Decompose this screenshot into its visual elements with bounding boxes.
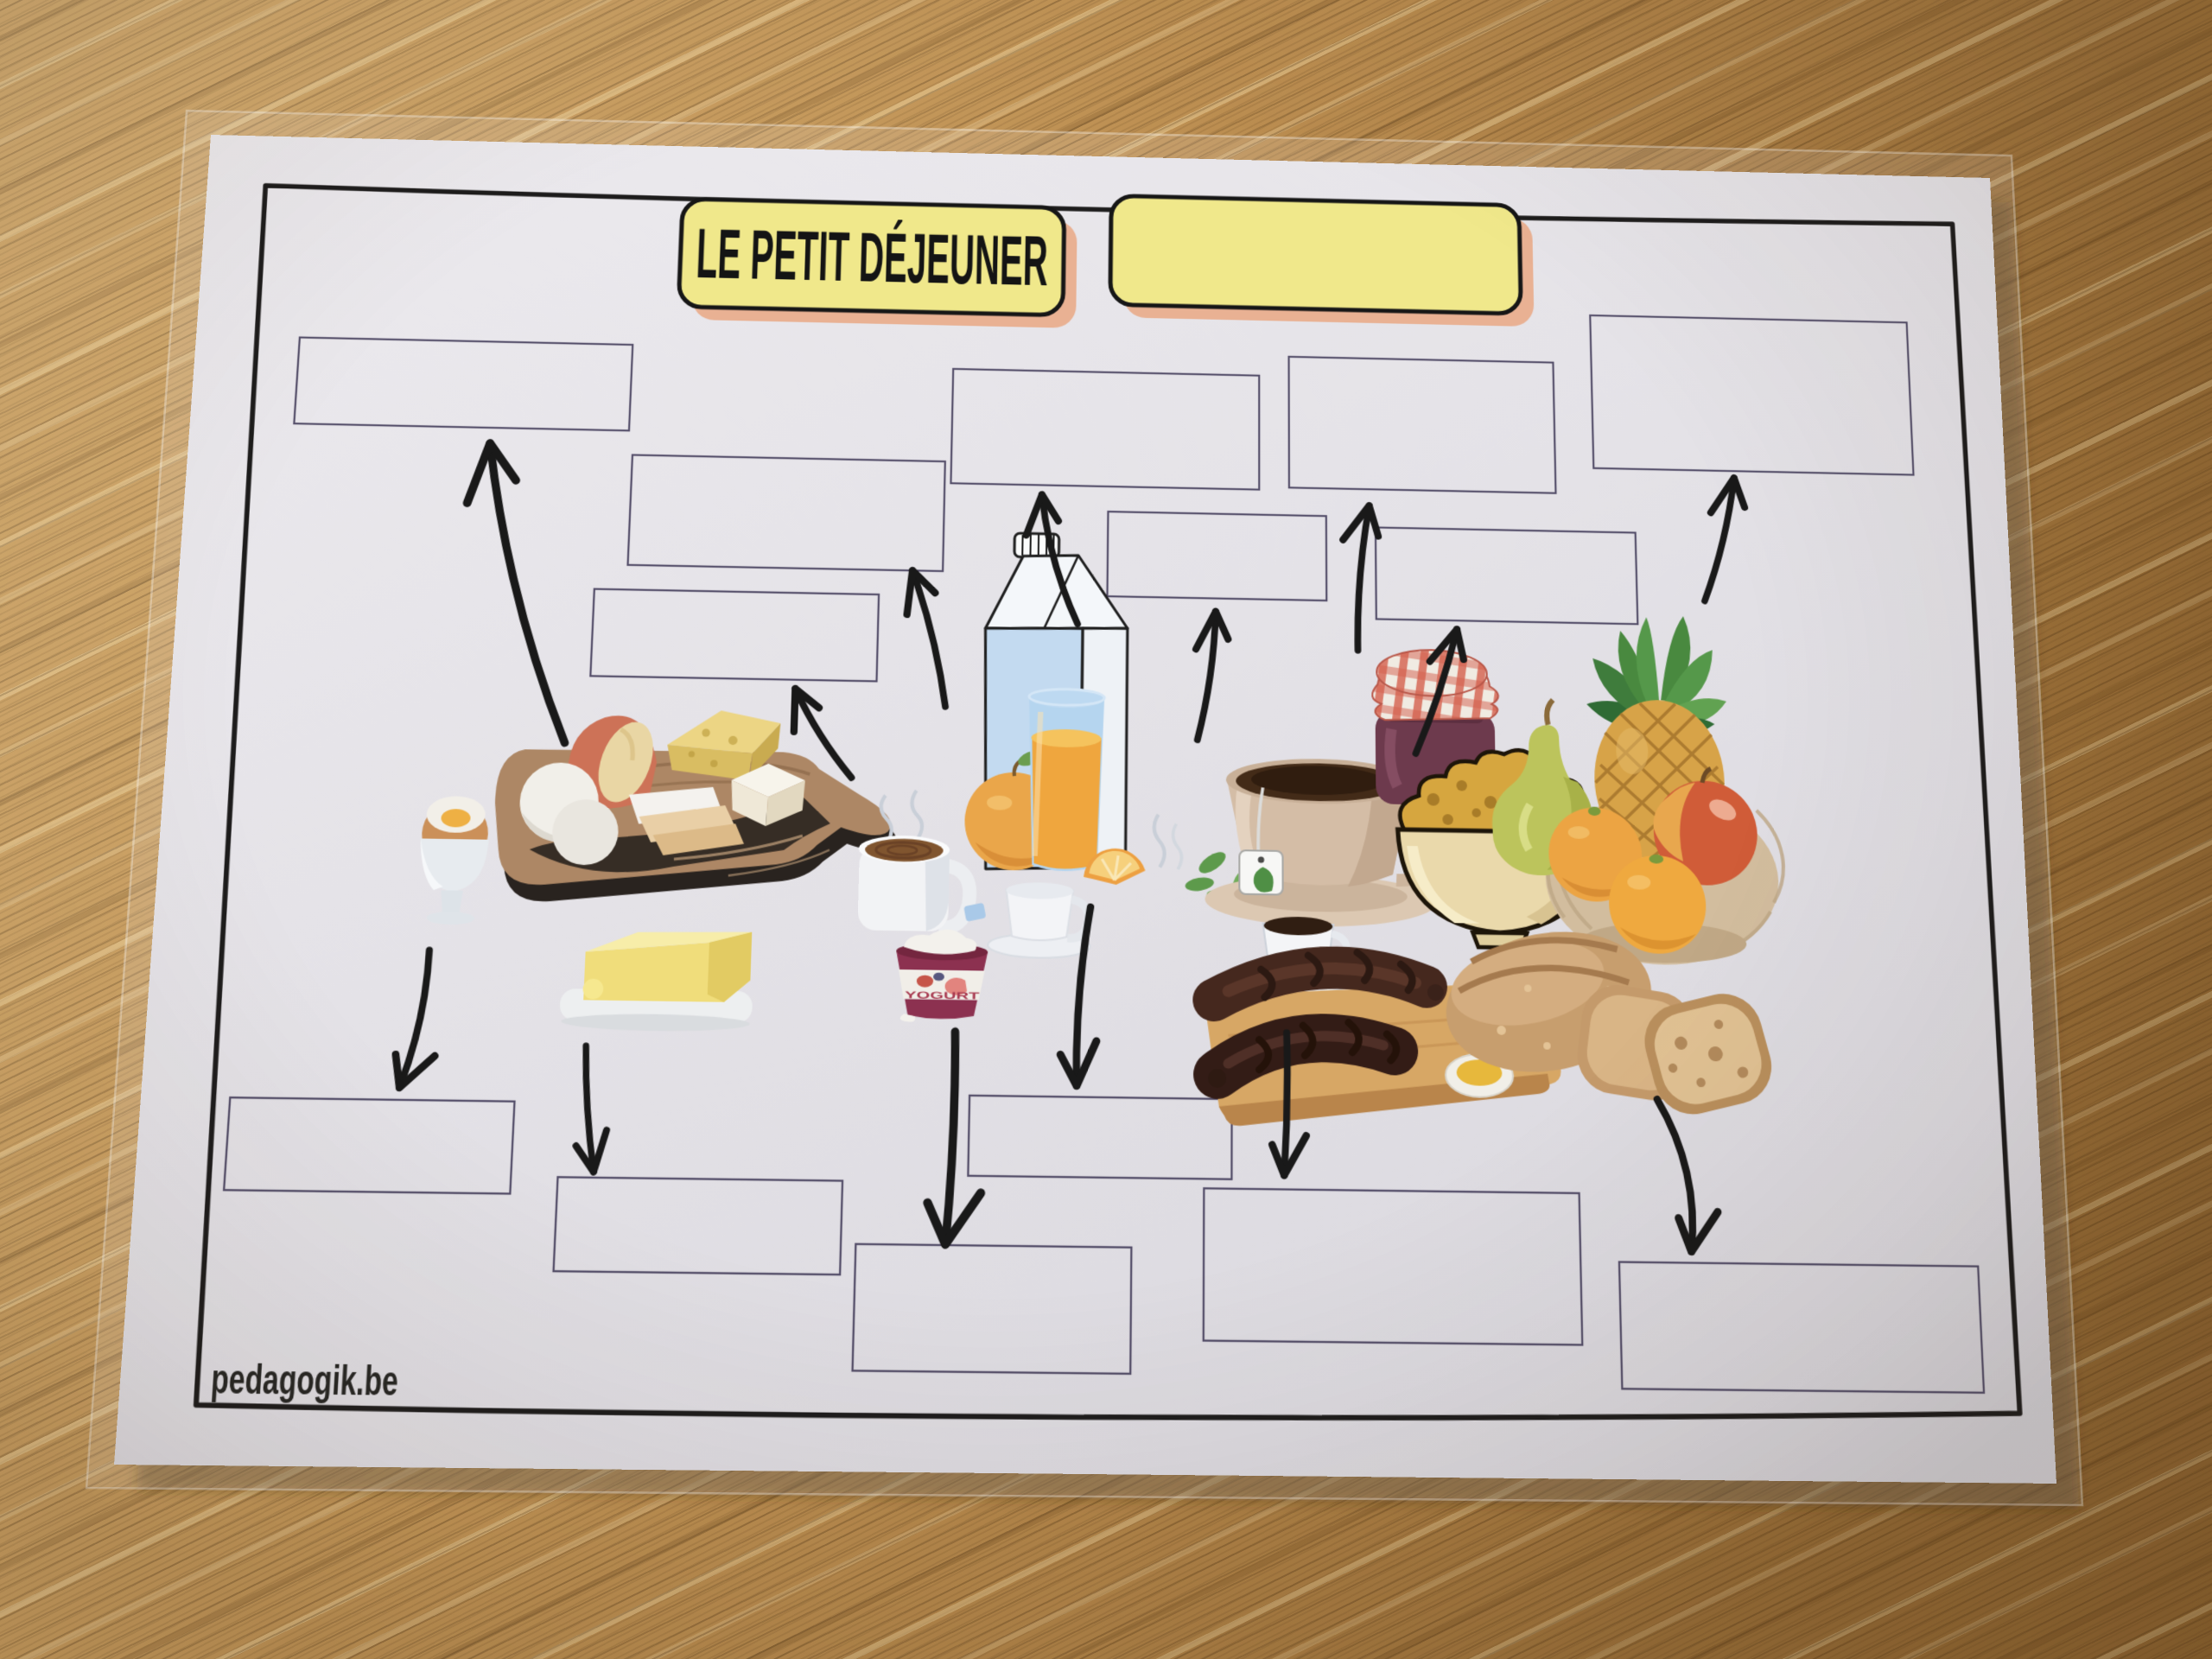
svg-text:YOGURT: YOGURT — [905, 990, 980, 1002]
svg-text:pedagogik.be: pedagogik.be — [210, 1356, 400, 1404]
svg-text:LE PETIT DÉJEUNER: LE PETIT DÉJEUNER — [695, 213, 1048, 301]
